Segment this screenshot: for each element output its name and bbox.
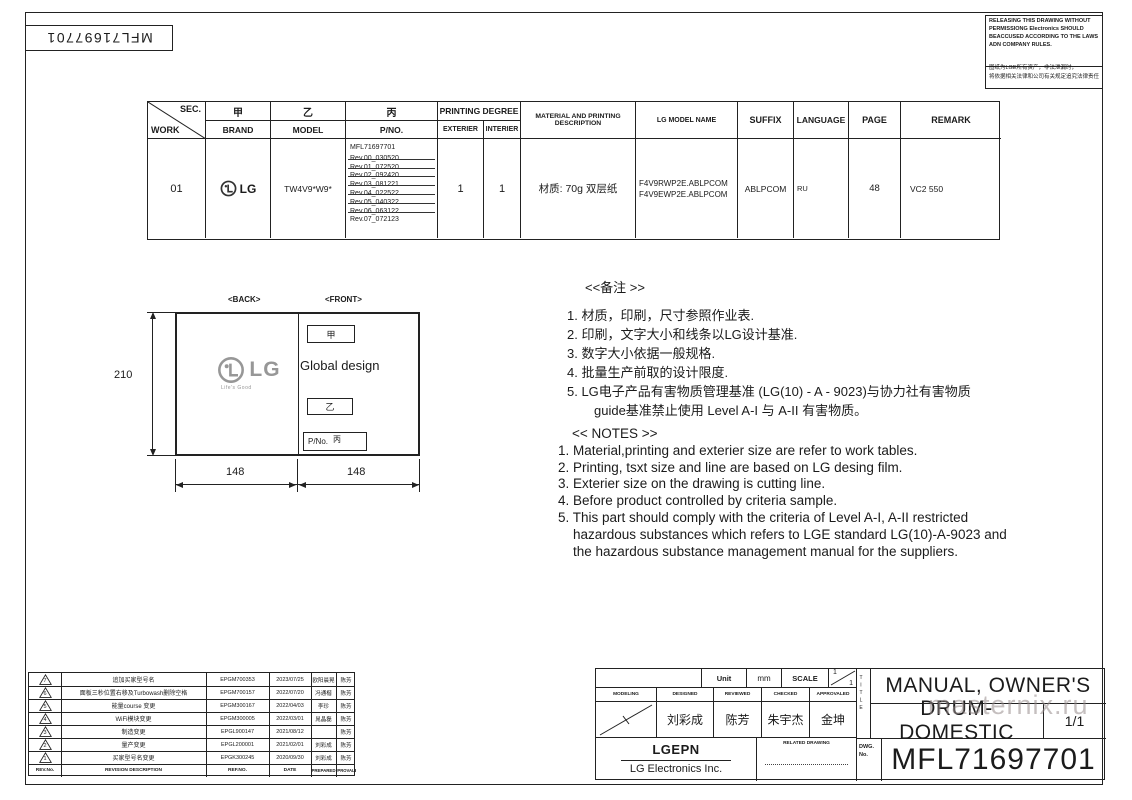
notes-chinese: <<备注 >> 1. 材质，印刷，尺寸参照作业表. 2. 印刷，文字大小和线条以… [567,278,1017,420]
arrow-right-icon [289,482,296,488]
designed-value: 刘彩成 [656,702,713,738]
revision-row: 5 能量course 变更 EPGM300167 2022/04/03 李珍 陈… [29,699,354,713]
notes-en-heading: << NOTES >> [572,426,1028,443]
rev-approved: 陈芳 [336,686,356,699]
rev-desc: 能量course 变更 [61,699,207,712]
row-page: 48 [849,139,901,238]
rev-triangle-icon: 2 [39,739,52,750]
footer-desc: REVISION DESCRIPTION [61,764,207,777]
rev-prepared: 冯通楷 [311,686,337,699]
reviewed-value: 陈芳 [713,702,761,738]
footer-approved: APPROVALED [336,764,356,777]
notes-english: << NOTES >> 1. Material,printing and ext… [558,426,1028,560]
rev-prepared: 刘彩成 [311,751,337,764]
rev-triangle-icon: 3 [39,726,52,737]
drawing-sheet: MFL71697701 RELEASING THIS DRAWING WITHO… [0,0,1132,800]
header-page: PAGE [849,102,901,139]
revision-row: 4 WiFi模块变更 EPGM300005 2022/03/01 晁晶磊 陈芳 [29,712,354,726]
row-interier: 1 [484,139,521,238]
notes-en-line: 5. This part should comply with the crit… [558,510,1028,527]
col-approvaled: APPROVALED [809,687,856,702]
rev-approved: 陈芳 [336,751,356,764]
rev-triangle-icon: 1 [39,752,52,763]
front-yi-box: 乙 [307,398,353,415]
rev-date: 2022/07/20 [269,686,312,699]
front-panel-label: <FRONT> [325,295,362,304]
work-label: WORK [151,125,180,135]
release-warning-cn: 图纸为LGE所有资产，非法泄漏时， 将依据相关法律和公司有关规定追究法律责任 [986,62,1102,88]
revision-row: 6 面板三秒位置右移及Turbowash删除空格 EPGM700157 2022… [29,686,354,700]
related-drawing-label: RELATED DRAWING [757,741,856,746]
header-brand: BRAND [206,121,271,139]
rev-prepared: 李珍 [311,699,337,712]
notes-en-line: 4. Before product controlled by criteria… [558,493,1028,510]
rev-ref: EPGK300245 [206,751,270,764]
header-bing: 丙 [346,102,438,121]
notes-cn-line: 4. 批量生产前取的设计限度. [567,363,1017,382]
approvaled-value: 金坤 [809,702,856,738]
dwg-number: MFL71697701 [881,738,1106,781]
none-cross-icon [596,702,656,738]
release-warning-box: RELEASING THIS DRAWING WITHOUT PERMISSIO… [985,15,1103,89]
row-brand: LG [206,139,271,238]
arrow-left-icon [299,482,306,488]
dim-width-right-value: 148 [347,466,365,478]
company-name-short: LGEPN [596,742,756,757]
pno-rev-struck: Rev.06_063122 [350,208,433,217]
scale-label-cell: SCALE [781,669,828,687]
revision-row: 2 量产变更 EPGL200001 2021/02/01 刘彩成 陈芳 [29,738,354,752]
checked-value: 朱宇杰 [761,702,809,738]
footer-ref: REF.NO. [206,764,270,777]
arrow-down-icon [150,449,156,456]
row-work: 01 [148,139,206,238]
dim-width-left-value: 148 [226,466,244,478]
revision-row: 7 追加买家型号名 EPGM700353 2023/07/25 欧阳晨晃 陈芳 [29,673,354,687]
notes-cn-line: guide基准禁止使用 Level A-I 与 A-II 有害物质。 [567,401,1017,420]
rev-approved: 陈芳 [336,738,356,751]
rev-date: 2021/08/12 [269,725,312,738]
rev-ref: EPGM700353 [206,673,270,686]
header-language: LANGUAGE [794,102,849,139]
pno-rev-struck: Rev.01_072520 [350,164,433,173]
scale-value-cell: 1 1 [828,669,856,687]
dwg-label-cell: DWG. No. [856,738,881,781]
header-remark: REMARK [901,102,1001,139]
arrow-left-icon [176,482,183,488]
arrow-right-icon [412,482,419,488]
header-lg-model: LG MODEL NAME [636,102,738,139]
header-jia: 甲 [206,102,271,121]
notes-en-line: hazardous substances which refers to LGE… [558,527,1028,544]
watermark: masternix.ru [928,690,1089,721]
row-model: TW4V9*W9* [271,139,346,238]
rev-date: 2020/09/30 [269,751,312,764]
back-logo-text: LG [249,358,280,382]
rev-approved: 陈芳 [336,725,356,738]
col-checked: CHECKED [761,687,809,702]
title-block: Unit mm SCALE 1 1 MODELING DESIGNED REVI… [595,668,1105,780]
work-table: SEC. WORK 甲 乙 丙 PRINTING DEGREE BRAND MO… [147,101,1000,240]
release-warning-en: RELEASING THIS DRAWING WITHOUT PERMISSIO… [986,16,1102,67]
scale-denominator: 1 [849,680,853,687]
sec-work-cell: SEC. WORK [148,102,206,139]
row-language: RU [794,139,849,238]
rev-desc: 制造变更 [61,725,207,738]
rev-triangle-icon: 7 [39,674,52,685]
header-printing-degree: PRINTING DEGREE [438,102,521,121]
header-interier: INTERIER [484,121,521,139]
row-lg-model: F4V9RWP2E.ABLPCOM F4V9EWP2E.ABLPCOM [636,139,738,238]
dim-line-horizontal [176,484,419,485]
notes-cn-heading: <<备注 >> [585,278,1017,297]
rev-ref: EPGM300167 [206,699,270,712]
pno-rev-struck: Rev.03_081221 [350,181,433,190]
header-pno: P/NO. [346,121,438,139]
rev-triangle-icon: 6 [39,687,52,698]
rev-date: 2023/07/25 [269,673,312,686]
row-exterier: 1 [438,139,484,238]
pno-rev-current: Rev.07_072123 [350,216,433,225]
rev-prepared [311,725,337,738]
notes-en-line: 2. Printing, tsxt size and line are base… [558,460,1028,477]
modeling-value [596,702,656,738]
notes-cn-line: 2. 印刷，文字大小和线条以LG设计基准. [567,325,1017,344]
col-designed: DESIGNED [656,687,713,702]
lg-face-icon [220,180,237,197]
revision-footer-row: REV.No. REVISION DESCRIPTION REF.NO. DAT… [29,764,354,777]
related-drawing-dotted-line [765,764,848,765]
manual-cover-drawing: LG Life's Good 甲 Global design 乙 P/No. 丙 [175,312,420,456]
rev-ref: EPGL900147 [206,725,270,738]
footer-revno: REV.No. [29,764,62,777]
rev-ref: EPGM300005 [206,712,270,725]
dim-height-value: 210 [114,369,132,381]
rev-ref: EPGM700157 [206,686,270,699]
lg-logo-text: LG [240,182,257,196]
pno-rev-struck: Rev.00_030520 [350,155,433,164]
notes-cn-line: 1. 材质，印刷，尺寸参照作业表. [567,306,1017,325]
notes-cn-line: 3. 数字大小依据一般规格. [567,344,1017,363]
notes-cn-line: 5. LG电子产品有害物质管理基准 (LG(10) - A - 9023)与协力… [567,382,1017,401]
rev-approved: 陈芳 [336,699,356,712]
dim-line-vertical [152,314,153,454]
rev-triangle-icon: 4 [39,713,52,724]
lg-model-name-2: F4V9EWP2E.ABLPCOM [639,189,727,200]
dim-ext-right [419,459,420,492]
row-remark: VC2 550 [901,139,1001,238]
pno-rev-struck: Rev.05_040322 [350,199,433,208]
header-exterier: EXTERIER [438,121,484,139]
lg-face-icon-gray [217,356,245,384]
pno-rev-struck: Rev.02_092420 [350,172,433,181]
rev-date: 2022/04/03 [269,699,312,712]
rev-approved: 陈芳 [336,673,356,686]
title-label-vertical: TITLE [858,675,864,713]
notes-en-line: the hazardous substance management manua… [558,544,1028,561]
revision-row: 3 制造变更 EPGL900147 2021/08/12 陈芳 [29,725,354,739]
rev-desc: 面板三秒位置右移及Turbowash删除空格 [61,686,207,699]
back-lg-logo: LG Life's Good [199,356,299,391]
header-yi: 乙 [271,102,346,121]
related-drawing-cell: RELATED DRAWING [756,738,856,781]
corner-doc-number-box: MFL71697701 [25,25,173,51]
rev-triangle-icon: 5 [39,700,52,711]
company-cell: LGEPN LG Electronics Inc. [596,738,756,781]
col-reviewed: REVIEWED [713,687,761,702]
rev-date: 2022/03/01 [269,712,312,725]
row-material: 材质: 70g 双层纸 [521,139,636,238]
rev-desc: 追加买家型号名 [61,673,207,686]
rev-desc: 量产变更 [61,738,207,751]
revision-row: 1 买家型号名变更 EPGK300245 2020/09/30 刘彩成 陈芳 [29,751,354,765]
header-material: MATERIAL AND PRINTING DESCRIPTION [521,102,636,139]
pno-rev-struck: Rev.04_022522 [350,190,433,199]
sec-label: SEC. [180,104,201,114]
corner-doc-number: MFL71697701 [46,30,153,46]
footer-date: DATE [269,764,312,777]
rev-approved: 陈芳 [336,712,356,725]
lg-logo-icon: LG [220,180,257,197]
arrow-up-icon [150,312,156,319]
footer-prepared: PREPARED [311,764,337,777]
notes-en-line: 3. Exterier size on the drawing is cutti… [558,476,1028,493]
back-logo-tagline: Life's Good [221,385,299,391]
row-pno: MFL71697701 Rev.00_030520 Rev.01_072520 … [346,139,438,238]
lg-model-name-1: F4V9RWP2E.ABLPCOM [639,178,728,189]
front-jia-box: 甲 [307,325,355,343]
unit-label-cell: Unit [701,669,746,687]
unit-value-cell: mm [746,669,781,687]
front-pno-box: P/No. 丙 [303,432,367,451]
rev-prepared: 晁晶磊 [311,712,337,725]
dim-ext-mid [297,459,298,492]
line [621,760,731,761]
rev-prepared: 刘彩成 [311,738,337,751]
back-panel-label: <BACK> [228,295,260,304]
scale-numerator: 1 [833,669,837,676]
front-global-design: Global design [300,358,380,373]
rev-desc: WiFi模块变更 [61,712,207,725]
rev-desc: 买家型号名变更 [61,751,207,764]
rev-date: 2021/02/01 [269,738,312,751]
rev-ref: EPGL200001 [206,738,270,751]
rev-prepared: 欧阳晨晃 [311,673,337,686]
row-suffix: ABLPCOM [738,139,794,238]
pno-part-number: MFL71697701 [350,144,433,153]
col-modeling: MODELING [596,687,656,702]
company-name-full: LG Electronics Inc. [596,763,756,775]
revision-table: 7 追加买家型号名 EPGM700353 2023/07/25 欧阳晨晃 陈芳 … [28,672,355,776]
header-suffix: SUFFIX [738,102,794,139]
header-model: MODEL [271,121,346,139]
notes-en-line: 1. Material,printing and exterier size a… [558,443,1028,460]
